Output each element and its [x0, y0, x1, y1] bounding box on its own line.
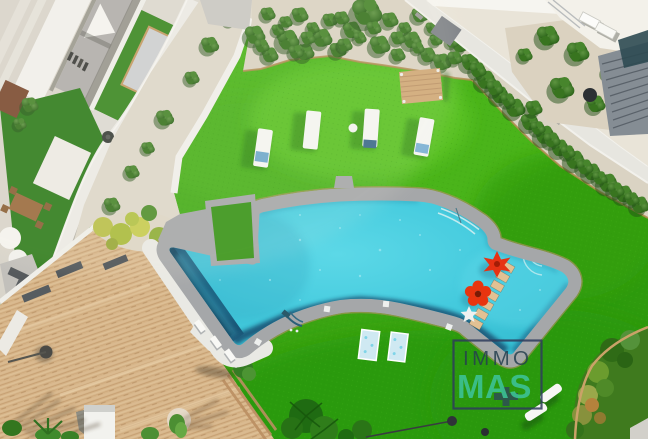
svg-text:MAS: MAS	[457, 368, 532, 405]
svg-text:IMMO: IMMO	[463, 347, 532, 370]
